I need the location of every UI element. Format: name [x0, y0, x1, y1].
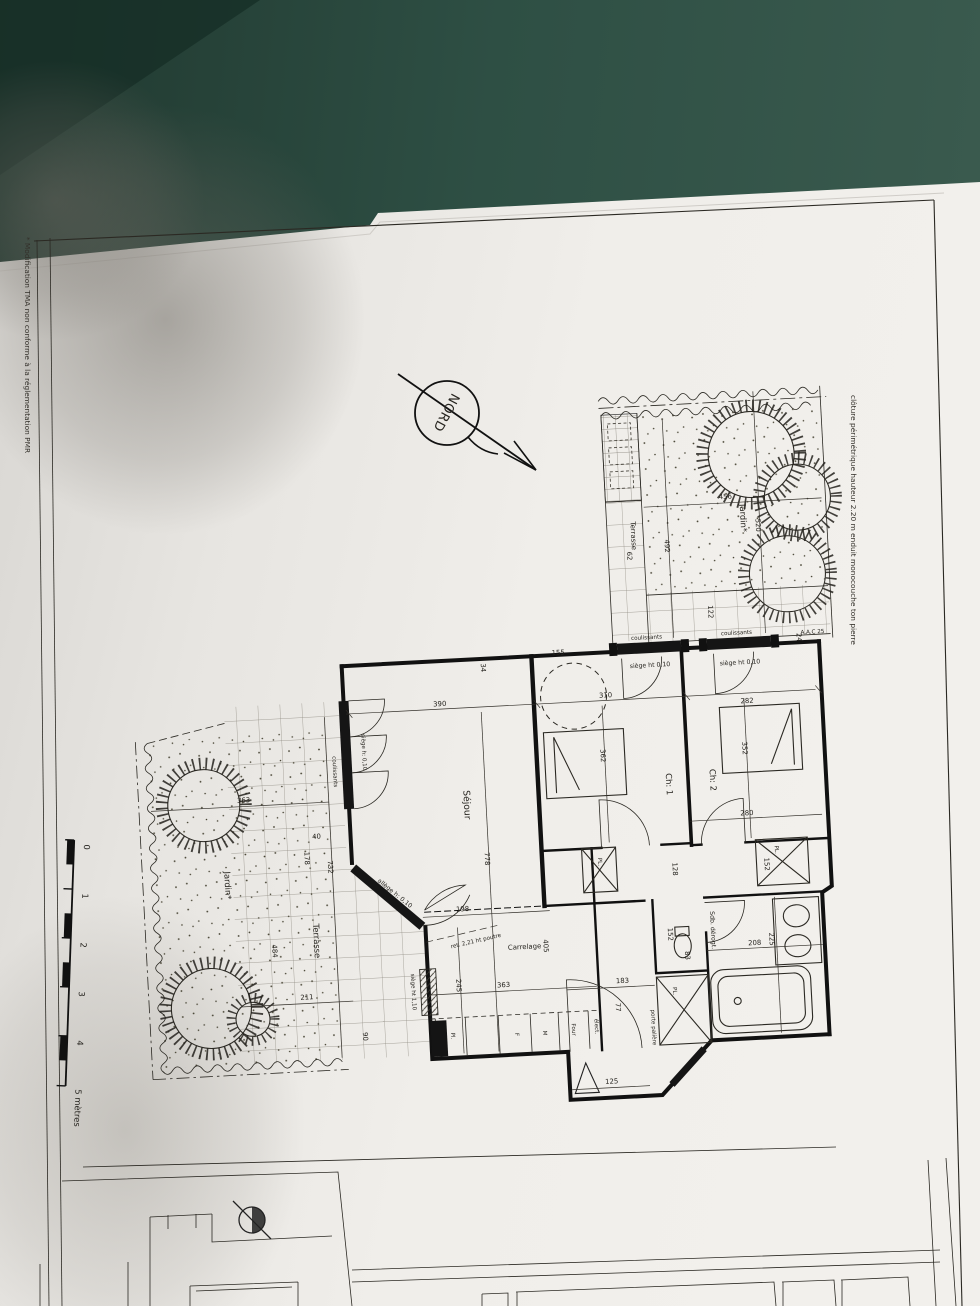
room-label-ch2: Ch: 2 [708, 769, 719, 791]
label-frigo: F [513, 1033, 519, 1037]
dim-778: 778 [483, 852, 492, 866]
dim-24: 24 [795, 633, 803, 642]
room-label-terrasse-west: Terrasse [311, 922, 323, 958]
dim-390: 390 [433, 700, 447, 709]
dim-40: 40 [312, 833, 321, 841]
label-placard: PL. [773, 845, 779, 854]
pergola-grid [601, 413, 642, 502]
kitchen-block [430, 1020, 448, 1057]
dim-122: 122 [706, 605, 715, 619]
label-placard: PL. [671, 987, 677, 996]
dim-128: 128 [670, 862, 679, 876]
fence-note: clôture périmétrique hauteur 2.20 m endu… [849, 395, 858, 645]
scale-1: 1 [80, 893, 90, 899]
dim-198: 198 [456, 905, 470, 914]
dim-178: 178 [302, 852, 311, 866]
dim-62: 62 [625, 551, 633, 560]
scale-5m: 5 mètres [72, 1089, 83, 1127]
margin-note: * Modification TMA non conforme à la rég… [23, 237, 32, 453]
room-label-ch1: Ch: 1 [664, 773, 675, 795]
dim-732: 732 [326, 860, 335, 874]
scale-4: 4 [75, 1040, 85, 1046]
scale-3: 3 [77, 991, 87, 997]
dim-125: 125 [605, 1077, 619, 1086]
dim-280: 280 [740, 809, 754, 818]
dim-83: 83 [683, 951, 691, 960]
dim-245: 245 [454, 979, 463, 993]
label-m: M [541, 1031, 547, 1036]
kitchen-window [420, 969, 438, 1016]
garden-west-speckle [147, 724, 342, 1069]
dim-405: 405 [541, 939, 550, 953]
dim-520: 520 [754, 518, 763, 532]
label-four: Four [570, 1023, 577, 1036]
dim-484: 484 [270, 944, 279, 958]
room-label-terrasse-north: Terrasse [628, 520, 638, 550]
scale-0: 0 [82, 844, 92, 850]
photo-of-floor-plan: * Modification TMA non conforme à la rég… [0, 0, 980, 1306]
dim-310: 310 [599, 691, 613, 700]
dim-363-kitchen: 363 [497, 981, 511, 990]
dim-183: 183 [616, 977, 630, 986]
dim-492: 492 [662, 539, 671, 553]
dim-352: 352 [740, 741, 749, 755]
dim-363-jardin: 363 [237, 796, 251, 805]
dim-208: 208 [748, 939, 762, 948]
label-elec: élect. [592, 1018, 600, 1034]
scale-2: 2 [78, 942, 88, 948]
dim-282: 282 [740, 697, 754, 706]
dim-90: 90 [361, 1032, 369, 1041]
dim-152: 152 [666, 928, 675, 942]
label-pl: Pl. [449, 1032, 455, 1039]
label-aac: A.A.C 25 [800, 629, 825, 636]
label-placard: PL. [596, 858, 602, 867]
floor-plan-scene: * Modification TMA non conforme à la rég… [0, 0, 980, 1306]
room-label-sejour: Séjour [460, 790, 473, 820]
dim-456: 456 [719, 493, 733, 502]
room-label-jardin-north: Jardin* [738, 503, 750, 533]
dim-225: 225 [767, 932, 776, 946]
dim-77: 77 [614, 1003, 622, 1012]
dim-34: 34 [479, 663, 487, 672]
dim-211: 211 [300, 993, 314, 1002]
dim-362: 362 [598, 749, 607, 763]
room-label-jardin-west: Jardin* [222, 870, 234, 900]
dim-155: 155 [551, 649, 565, 658]
dim-152: 152 [762, 857, 771, 871]
